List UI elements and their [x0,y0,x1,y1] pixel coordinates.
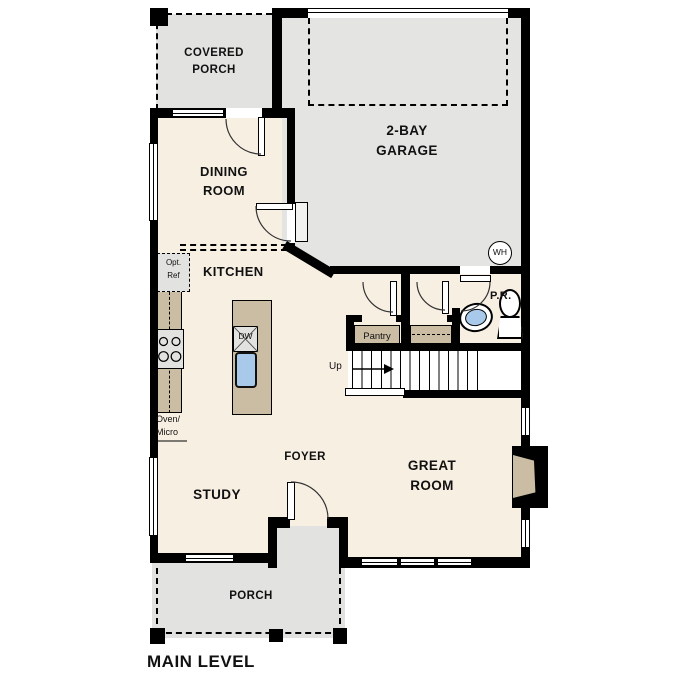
window-dining-left [149,143,158,221]
stair-railing [345,388,405,396]
window-great-room-right-lower [521,519,530,548]
window-great-room-bottom-1 [361,558,398,566]
room-label-foyer: FOYER [281,449,329,466]
garage-entry-step [295,202,308,242]
opt-ref-label: Opt. Ref [157,257,190,283]
porch-post-top-left [150,8,168,26]
wall-closet-top-stub-left [346,315,362,322]
wall-garage-top-left [272,8,310,18]
entry-vestibule-floor [277,526,340,566]
coat-closet-rod-dash [412,334,450,336]
door-leaf-front-entry [287,482,295,520]
oven-micro-label: Oven/ Micro [156,413,196,439]
window-great-room-right-upper [521,407,530,436]
room-label-dining: DINING ROOM [174,163,274,201]
dishwasher-label: DW [233,331,258,341]
room-label-pantry: Pantry [356,331,398,342]
plan-title: MAIN LEVEL [147,650,347,675]
floor-plan: WH COVERED [0,0,687,687]
water-heater-label: WH [488,247,512,257]
door-leaf-coat-closet [442,281,449,314]
window-study-bottom [185,554,234,562]
powder-room-door-opening [460,266,490,274]
kitchen-dining-divider-dash-1 [180,244,287,246]
wall-garage-bottom [330,266,522,274]
wall-vestibule-right [339,517,348,568]
room-label-kitchen: KITCHEN [203,263,279,282]
window-dining-top [172,109,224,117]
room-label-covered-porch: COVERED PORCH [168,45,260,78]
stairs-up-label: Up [329,361,351,372]
window-study-left [149,457,158,536]
room-label-porch: PORCH [227,588,275,605]
room-label-great-room: GREAT ROOM [400,456,464,495]
porch-post-bottom-middle [269,629,283,642]
room-label-garage: 2-BAY GARAGE [357,121,457,160]
wall-covered-porch-right [272,8,282,112]
cooktop [155,329,184,369]
toilet-base [497,316,523,339]
garage-door-opening [308,8,508,18]
window-great-room-bottom-3 [437,558,472,566]
porch-post-bottom-left [150,628,165,644]
wall-stair-top [346,343,522,351]
stair-treads [352,351,478,390]
wall-stair-bottom [403,390,521,398]
island-sink [235,352,257,388]
door-leaf-pantry [390,281,397,316]
door-leaf-powder-room [460,275,491,282]
wall-closet-top-stub-mid [396,315,410,322]
door-leaf-dining-garage [256,203,293,210]
wall-closet-divider [401,273,410,351]
window-great-room-bottom-2 [400,558,435,566]
porch-post-bottom-right [333,628,347,644]
front-porch-door-opening [226,108,262,118]
door-leaf-front-porch-entry [258,117,265,156]
garage-door-dashed-outline [308,18,508,106]
room-label-study: STUDY [187,485,247,505]
room-label-powder-room: P.R. [490,289,526,305]
kitchen-dining-divider-dash-2 [180,249,287,251]
